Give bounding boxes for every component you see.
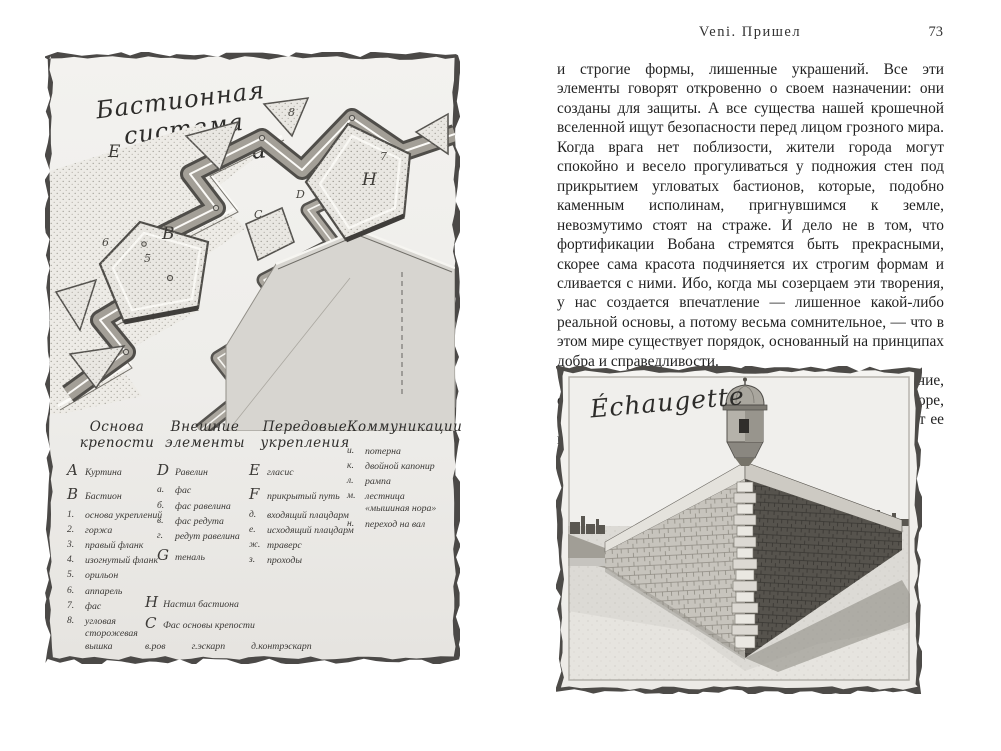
legend-item: ж.траверс bbox=[249, 540, 361, 552]
paragraph: и строгие формы, лишенные украшений. Все… bbox=[557, 60, 944, 371]
diagram-label: 6 bbox=[102, 236, 109, 249]
diagram-label: 8 bbox=[288, 106, 295, 119]
legend-item: Gтеналь bbox=[157, 546, 253, 564]
legend-header: Внешние элементы bbox=[157, 420, 253, 451]
fortress-interior bbox=[226, 230, 455, 431]
bastion-system-plate: Бастионная система укреплений bbox=[45, 52, 460, 664]
legend-item: м.лестница «мышиная нора» bbox=[347, 491, 451, 515]
running-title: Veni. Пришел bbox=[557, 24, 943, 41]
legend-item: д.контрэскарп bbox=[251, 636, 312, 654]
legend-item: г.эскарп bbox=[192, 636, 226, 654]
legend-column-advanced-works: Передовые укрепления EгласисFприкрытый п… bbox=[249, 420, 361, 570]
legend-column-outer-elements: Внешние элементы DРавелина.фасб.фас раве… bbox=[157, 420, 253, 570]
diagram-label: C bbox=[254, 208, 262, 221]
legend-item: д.входящий плацдарм bbox=[249, 510, 361, 522]
page-number: 73 bbox=[929, 24, 944, 41]
legend-footer-row: в.ровг.эскарпд.контрэскарп bbox=[145, 636, 445, 656]
diagram-label: H bbox=[362, 170, 377, 190]
book-spread-page: Бастионная система укреплений bbox=[0, 0, 1001, 751]
legend-item: з.проходы bbox=[249, 555, 361, 567]
legend-item: 3.правый фланк bbox=[67, 540, 167, 552]
legend-item: Fприкрытый путь bbox=[249, 485, 361, 503]
legend-header: Основа крепости bbox=[67, 420, 167, 451]
diagram-label: 5 bbox=[144, 252, 151, 265]
legend-item: AКуртина bbox=[67, 461, 167, 479]
legend-header: Коммуникации bbox=[347, 420, 451, 436]
legend-item: в.фас редута bbox=[157, 516, 253, 528]
legend-column-communications: Коммуникации и.потернак.двойной капонирл… bbox=[347, 420, 451, 534]
legend-item: л.рампа bbox=[347, 476, 451, 488]
legend-item: 1.основа укреплений bbox=[67, 510, 167, 522]
legend-item: е.исходящий плацдарм bbox=[249, 525, 361, 537]
legend-header: Передовые укрепления bbox=[249, 420, 361, 451]
legend-item: в.ров bbox=[145, 636, 166, 654]
legend-item: н.переход на вал bbox=[347, 519, 451, 531]
legend-item: HНастил бастиона bbox=[145, 593, 445, 611]
diagram-label: D bbox=[296, 188, 305, 201]
echaugette-plate: Échaugette bbox=[556, 366, 922, 694]
legend-item: 5.орильон bbox=[67, 570, 167, 582]
diagram-label: 7 bbox=[380, 150, 387, 163]
legend-item: DРавелин bbox=[157, 461, 253, 479]
running-header: Veni. Пришел 73 bbox=[557, 24, 943, 42]
diagram-label: E bbox=[108, 142, 120, 162]
legend-item: 2.горжа bbox=[67, 525, 167, 537]
legend-footer: HНастил бастионаCФас основы крепости в.р… bbox=[145, 590, 445, 656]
legend-item: 4.изогнутый фланк bbox=[67, 555, 167, 567]
legend: Основа крепости AКуртинаBБастион1.основа… bbox=[45, 420, 460, 664]
legend-item: и.потерна bbox=[347, 446, 451, 458]
legend-item: г.редут равелина bbox=[157, 531, 253, 543]
diagram-label: B bbox=[162, 224, 175, 244]
legend-item: а.фас bbox=[157, 485, 253, 497]
legend-item: CФас основы крепости bbox=[145, 614, 445, 632]
legend-item: к.двойной капонир bbox=[347, 461, 451, 473]
legend-item: б.фас равелина bbox=[157, 501, 253, 513]
legend-item: BБастион bbox=[67, 485, 167, 503]
fortification-diagram: EBHCD7568 bbox=[50, 96, 455, 431]
legend-item: Eгласис bbox=[249, 461, 361, 479]
